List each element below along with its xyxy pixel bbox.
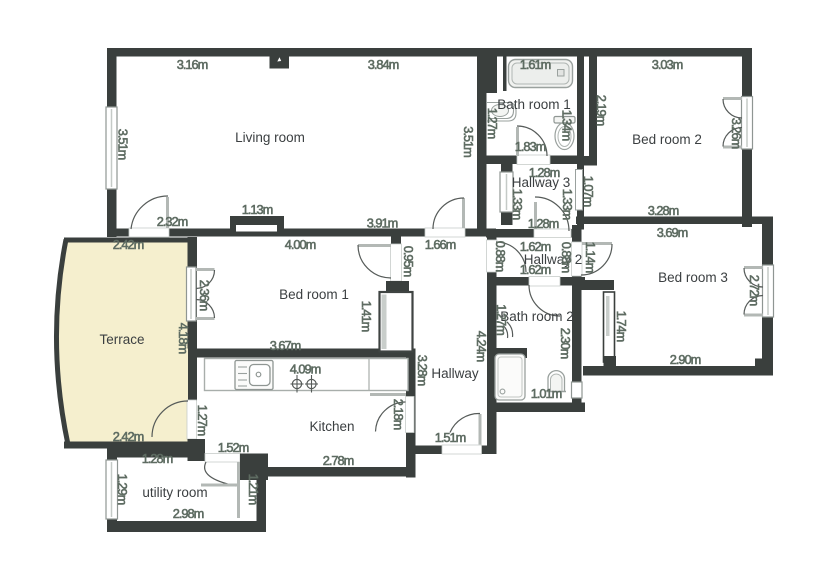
- svg-text:1.27m: 1.27m: [494, 304, 509, 335]
- svg-text:3.91m: 3.91m: [367, 216, 398, 231]
- svg-text:1.34m: 1.34m: [559, 110, 574, 141]
- svg-text:0.95m: 0.95m: [401, 246, 416, 277]
- svg-text:3.28m: 3.28m: [415, 355, 430, 386]
- svg-text:1.28m: 1.28m: [529, 165, 560, 180]
- svg-text:1.62m: 1.62m: [520, 262, 551, 277]
- svg-text:1.14m: 1.14m: [583, 242, 598, 273]
- svg-text:2.42m: 2.42m: [113, 429, 144, 444]
- svg-text:2.98m: 2.98m: [173, 506, 204, 521]
- svg-text:utility room: utility room: [142, 485, 207, 500]
- svg-text:1.33m: 1.33m: [560, 189, 575, 220]
- svg-text:1.62m: 1.62m: [520, 239, 551, 254]
- svg-text:1.01m: 1.01m: [531, 386, 562, 401]
- svg-text:Bed room 2: Bed room 2: [632, 132, 702, 147]
- svg-text:Terrace: Terrace: [99, 332, 144, 347]
- svg-text:Bed room 3: Bed room 3: [658, 270, 728, 285]
- svg-text:3.69m: 3.69m: [657, 225, 688, 240]
- svg-text:4.09m: 4.09m: [290, 362, 321, 377]
- svg-text:2.72m: 2.72m: [747, 275, 762, 306]
- svg-text:1.28m: 1.28m: [142, 451, 173, 466]
- svg-text:2.19m: 2.19m: [594, 95, 609, 126]
- svg-text:1.27m: 1.27m: [485, 108, 500, 139]
- svg-text:0.88m: 0.88m: [493, 241, 508, 272]
- svg-text:1.13m: 1.13m: [242, 202, 273, 217]
- svg-text:1.74m: 1.74m: [614, 311, 629, 342]
- svg-text:2.36m: 2.36m: [197, 280, 212, 311]
- svg-text:1.21m: 1.21m: [246, 474, 261, 505]
- svg-text:1.61m: 1.61m: [520, 57, 551, 72]
- svg-text:2.78m: 2.78m: [323, 453, 354, 468]
- svg-text:1.52m: 1.52m: [218, 440, 249, 455]
- svg-text:Kitchen: Kitchen: [309, 419, 354, 434]
- svg-text:Bath room 2: Bath room 2: [500, 309, 574, 324]
- svg-text:3.03m: 3.03m: [652, 57, 683, 72]
- svg-text:3.84m: 3.84m: [368, 57, 399, 72]
- svg-text:0.88m: 0.88m: [559, 242, 574, 273]
- svg-text:4.18m: 4.18m: [176, 323, 191, 354]
- svg-text:1.83m: 1.83m: [515, 139, 546, 154]
- svg-text:3.67m: 3.67m: [270, 338, 301, 353]
- svg-text:1.29m: 1.29m: [115, 474, 130, 505]
- svg-text:4.00m: 4.00m: [285, 237, 316, 252]
- svg-text:Living room: Living room: [235, 130, 305, 145]
- svg-text:3.51m: 3.51m: [461, 126, 476, 157]
- svg-text:2.90m: 2.90m: [670, 352, 701, 367]
- svg-text:1.66m: 1.66m: [425, 237, 456, 252]
- svg-text:2.42m: 2.42m: [113, 237, 144, 252]
- svg-text:3.51m: 3.51m: [115, 129, 130, 160]
- svg-text:3.28m: 3.28m: [648, 203, 679, 218]
- svg-text:1.51m: 1.51m: [435, 430, 466, 445]
- svg-text:1.27m: 1.27m: [195, 405, 210, 436]
- svg-text:4.24m: 4.24m: [474, 331, 489, 362]
- svg-text:2.18m: 2.18m: [391, 399, 406, 430]
- svg-text:2.30m: 2.30m: [558, 328, 573, 359]
- svg-text:3.16m: 3.16m: [177, 57, 208, 72]
- svg-text:2.32m: 2.32m: [157, 214, 188, 229]
- svg-text:1.07m: 1.07m: [581, 176, 596, 207]
- svg-text:Hallway: Hallway: [431, 366, 479, 381]
- svg-text:1.41m: 1.41m: [359, 301, 374, 332]
- svg-text:Bed room 1: Bed room 1: [279, 287, 349, 302]
- svg-text:1.28m: 1.28m: [528, 216, 559, 231]
- svg-text:3.26m: 3.26m: [729, 118, 744, 149]
- svg-text:1.33m: 1.33m: [510, 189, 525, 220]
